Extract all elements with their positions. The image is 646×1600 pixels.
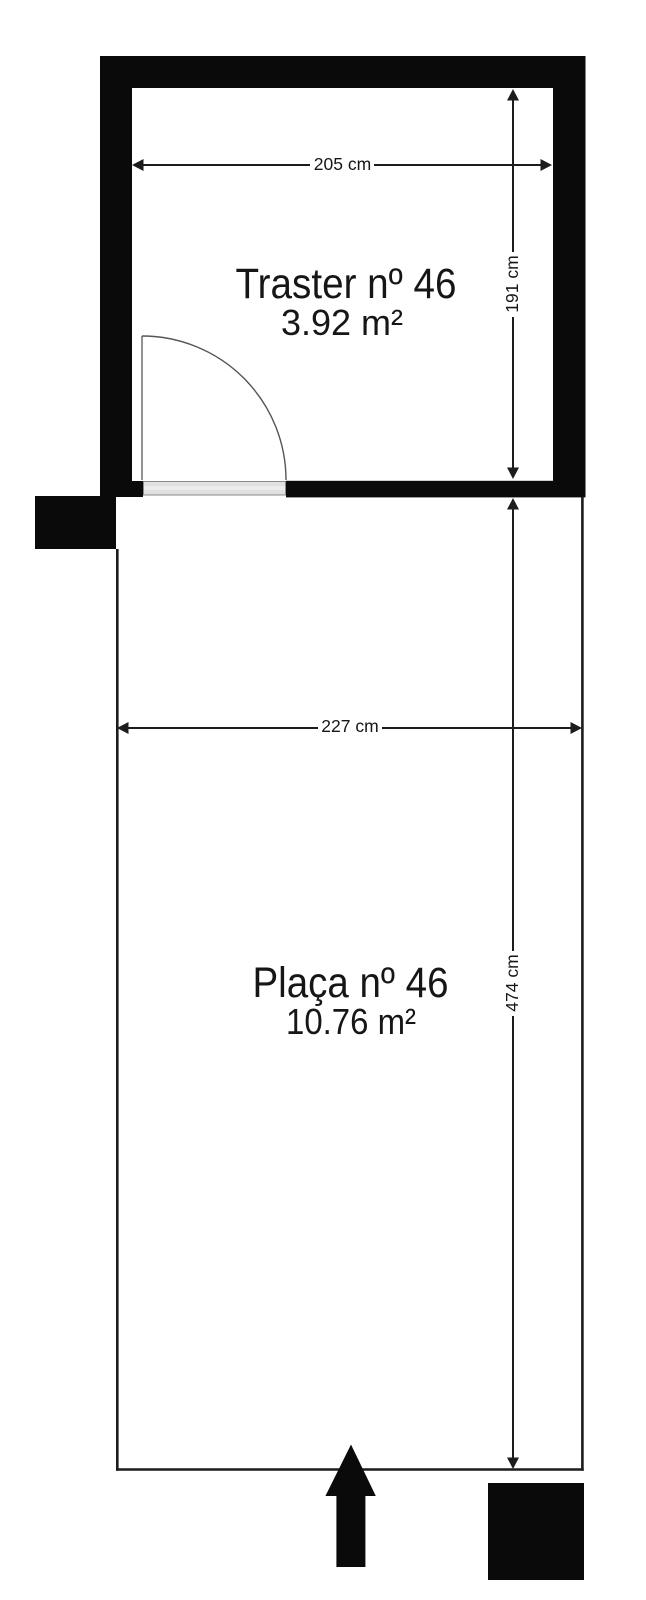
- svg-text:Traster nº 46: Traster nº 46: [236, 260, 457, 308]
- svg-text:474 cm: 474 cm: [502, 954, 522, 1011]
- svg-text:Plaça nº 46: Plaça nº 46: [253, 959, 449, 1007]
- svg-text:191 cm: 191 cm: [502, 255, 522, 312]
- svg-text:3.92 m²: 3.92 m²: [281, 302, 403, 343]
- svg-text:205 cm: 205 cm: [314, 154, 371, 174]
- svg-text:227 cm: 227 cm: [321, 716, 378, 736]
- svg-text:10.76 m²: 10.76 m²: [286, 1001, 416, 1042]
